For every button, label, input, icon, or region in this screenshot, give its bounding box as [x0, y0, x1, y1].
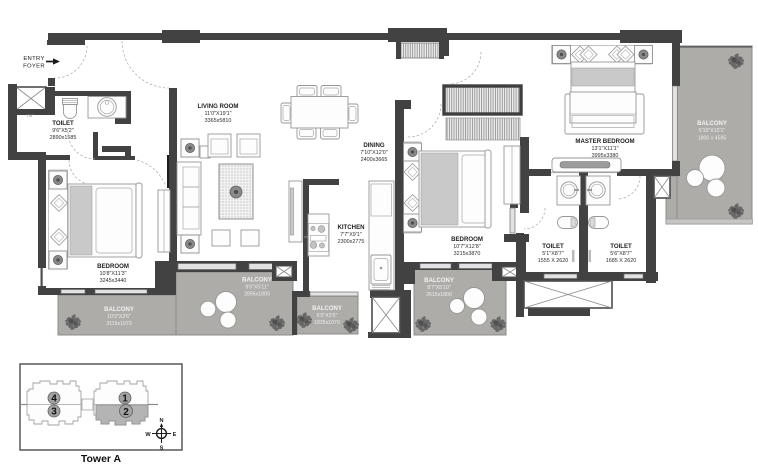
svg-text:2615x1800: 2615x1800	[426, 292, 452, 298]
svg-text:S: S	[160, 446, 164, 452]
svg-text:7'6": 7'6"	[26, 113, 34, 118]
svg-text:1835x1070: 1835x1070	[314, 320, 340, 326]
svg-text:1685 X 2620: 1685 X 2620	[606, 258, 637, 264]
svg-text:1800 x 4595: 1800 x 4595	[698, 136, 727, 142]
svg-text:BEDROOM: BEDROOM	[97, 263, 129, 270]
svg-text:8'7"X5'10": 8'7"X5'10"	[427, 285, 451, 291]
svg-text:2: 2	[123, 407, 129, 418]
svg-text:TOILET: TOILET	[52, 120, 74, 127]
svg-text:W: W	[145, 432, 151, 438]
svg-text:3365x5810: 3365x5810	[205, 118, 232, 124]
svg-text:KITCHEN: KITCHEN	[337, 224, 364, 231]
svg-text:TOILET: TOILET	[542, 243, 564, 250]
svg-text:10'8"X11'3": 10'8"X11'3"	[99, 271, 126, 277]
svg-text:BALCONY: BALCONY	[104, 307, 134, 313]
svg-text:MASTER BEDROOM: MASTER BEDROOM	[575, 138, 634, 145]
svg-text:BEDROOM: BEDROOM	[451, 236, 483, 243]
svg-text:FOYER: FOYER	[23, 64, 45, 70]
svg-text:5'1"X8'7": 5'1"X8'7"	[542, 251, 564, 257]
svg-text:N: N	[159, 418, 163, 424]
svg-text:11'0"X19'1": 11'0"X19'1"	[204, 111, 231, 117]
svg-text:LIVING ROOM: LIVING ROOM	[198, 103, 239, 110]
svg-text:6'0"X3'6": 6'0"X3'6"	[317, 313, 338, 319]
svg-text:3: 3	[51, 407, 57, 418]
svg-text:7'10"X12'0": 7'10"X12'0"	[360, 150, 388, 156]
svg-text:BALCONY: BALCONY	[424, 278, 454, 284]
svg-text:2895x1800: 2895x1800	[244, 292, 270, 298]
svg-text:13'1"X11'1": 13'1"X11'1"	[591, 146, 618, 152]
svg-text:1555 X 2620: 1555 X 2620	[538, 258, 569, 264]
svg-text:TOILET: TOILET	[610, 243, 632, 250]
svg-text:Tower A: Tower A	[81, 453, 122, 465]
svg-text:BALCONY: BALCONY	[242, 278, 272, 284]
svg-text:5'10"X15'1": 5'10"X15'1"	[699, 128, 726, 134]
svg-text:E: E	[173, 432, 177, 438]
svg-text:3245x3440: 3245x3440	[100, 278, 127, 284]
svg-text:2300x2775: 2300x2775	[338, 239, 365, 245]
svg-text:9'6"X5'2": 9'6"X5'2"	[52, 128, 74, 134]
svg-text:2890x1585: 2890x1585	[50, 135, 77, 141]
svg-text:BALCONY: BALCONY	[697, 121, 727, 127]
svg-text:ENTRY: ENTRY	[23, 56, 44, 62]
svg-text:7'7"X9'1": 7'7"X9'1"	[340, 232, 362, 238]
svg-text:DINING: DINING	[363, 142, 385, 149]
svg-text:2400x3665: 2400x3665	[361, 157, 388, 163]
svg-text:3115x1070: 3115x1070	[106, 321, 131, 327]
svg-text:5'6"X8'7": 5'6"X8'7"	[610, 251, 632, 257]
svg-text:1: 1	[122, 394, 128, 405]
svg-text:BALCONY: BALCONY	[312, 306, 342, 312]
svg-text:3215x3870: 3215x3870	[454, 251, 481, 257]
svg-text:9'6"X5'11": 9'6"X5'11"	[245, 285, 268, 291]
svg-text:4: 4	[51, 394, 57, 405]
svg-text:10'3"X3'6": 10'3"X3'6"	[107, 314, 131, 320]
svg-text:3995x3380: 3995x3380	[592, 153, 619, 159]
svg-text:10'7"X12'8": 10'7"X12'8"	[453, 244, 481, 250]
